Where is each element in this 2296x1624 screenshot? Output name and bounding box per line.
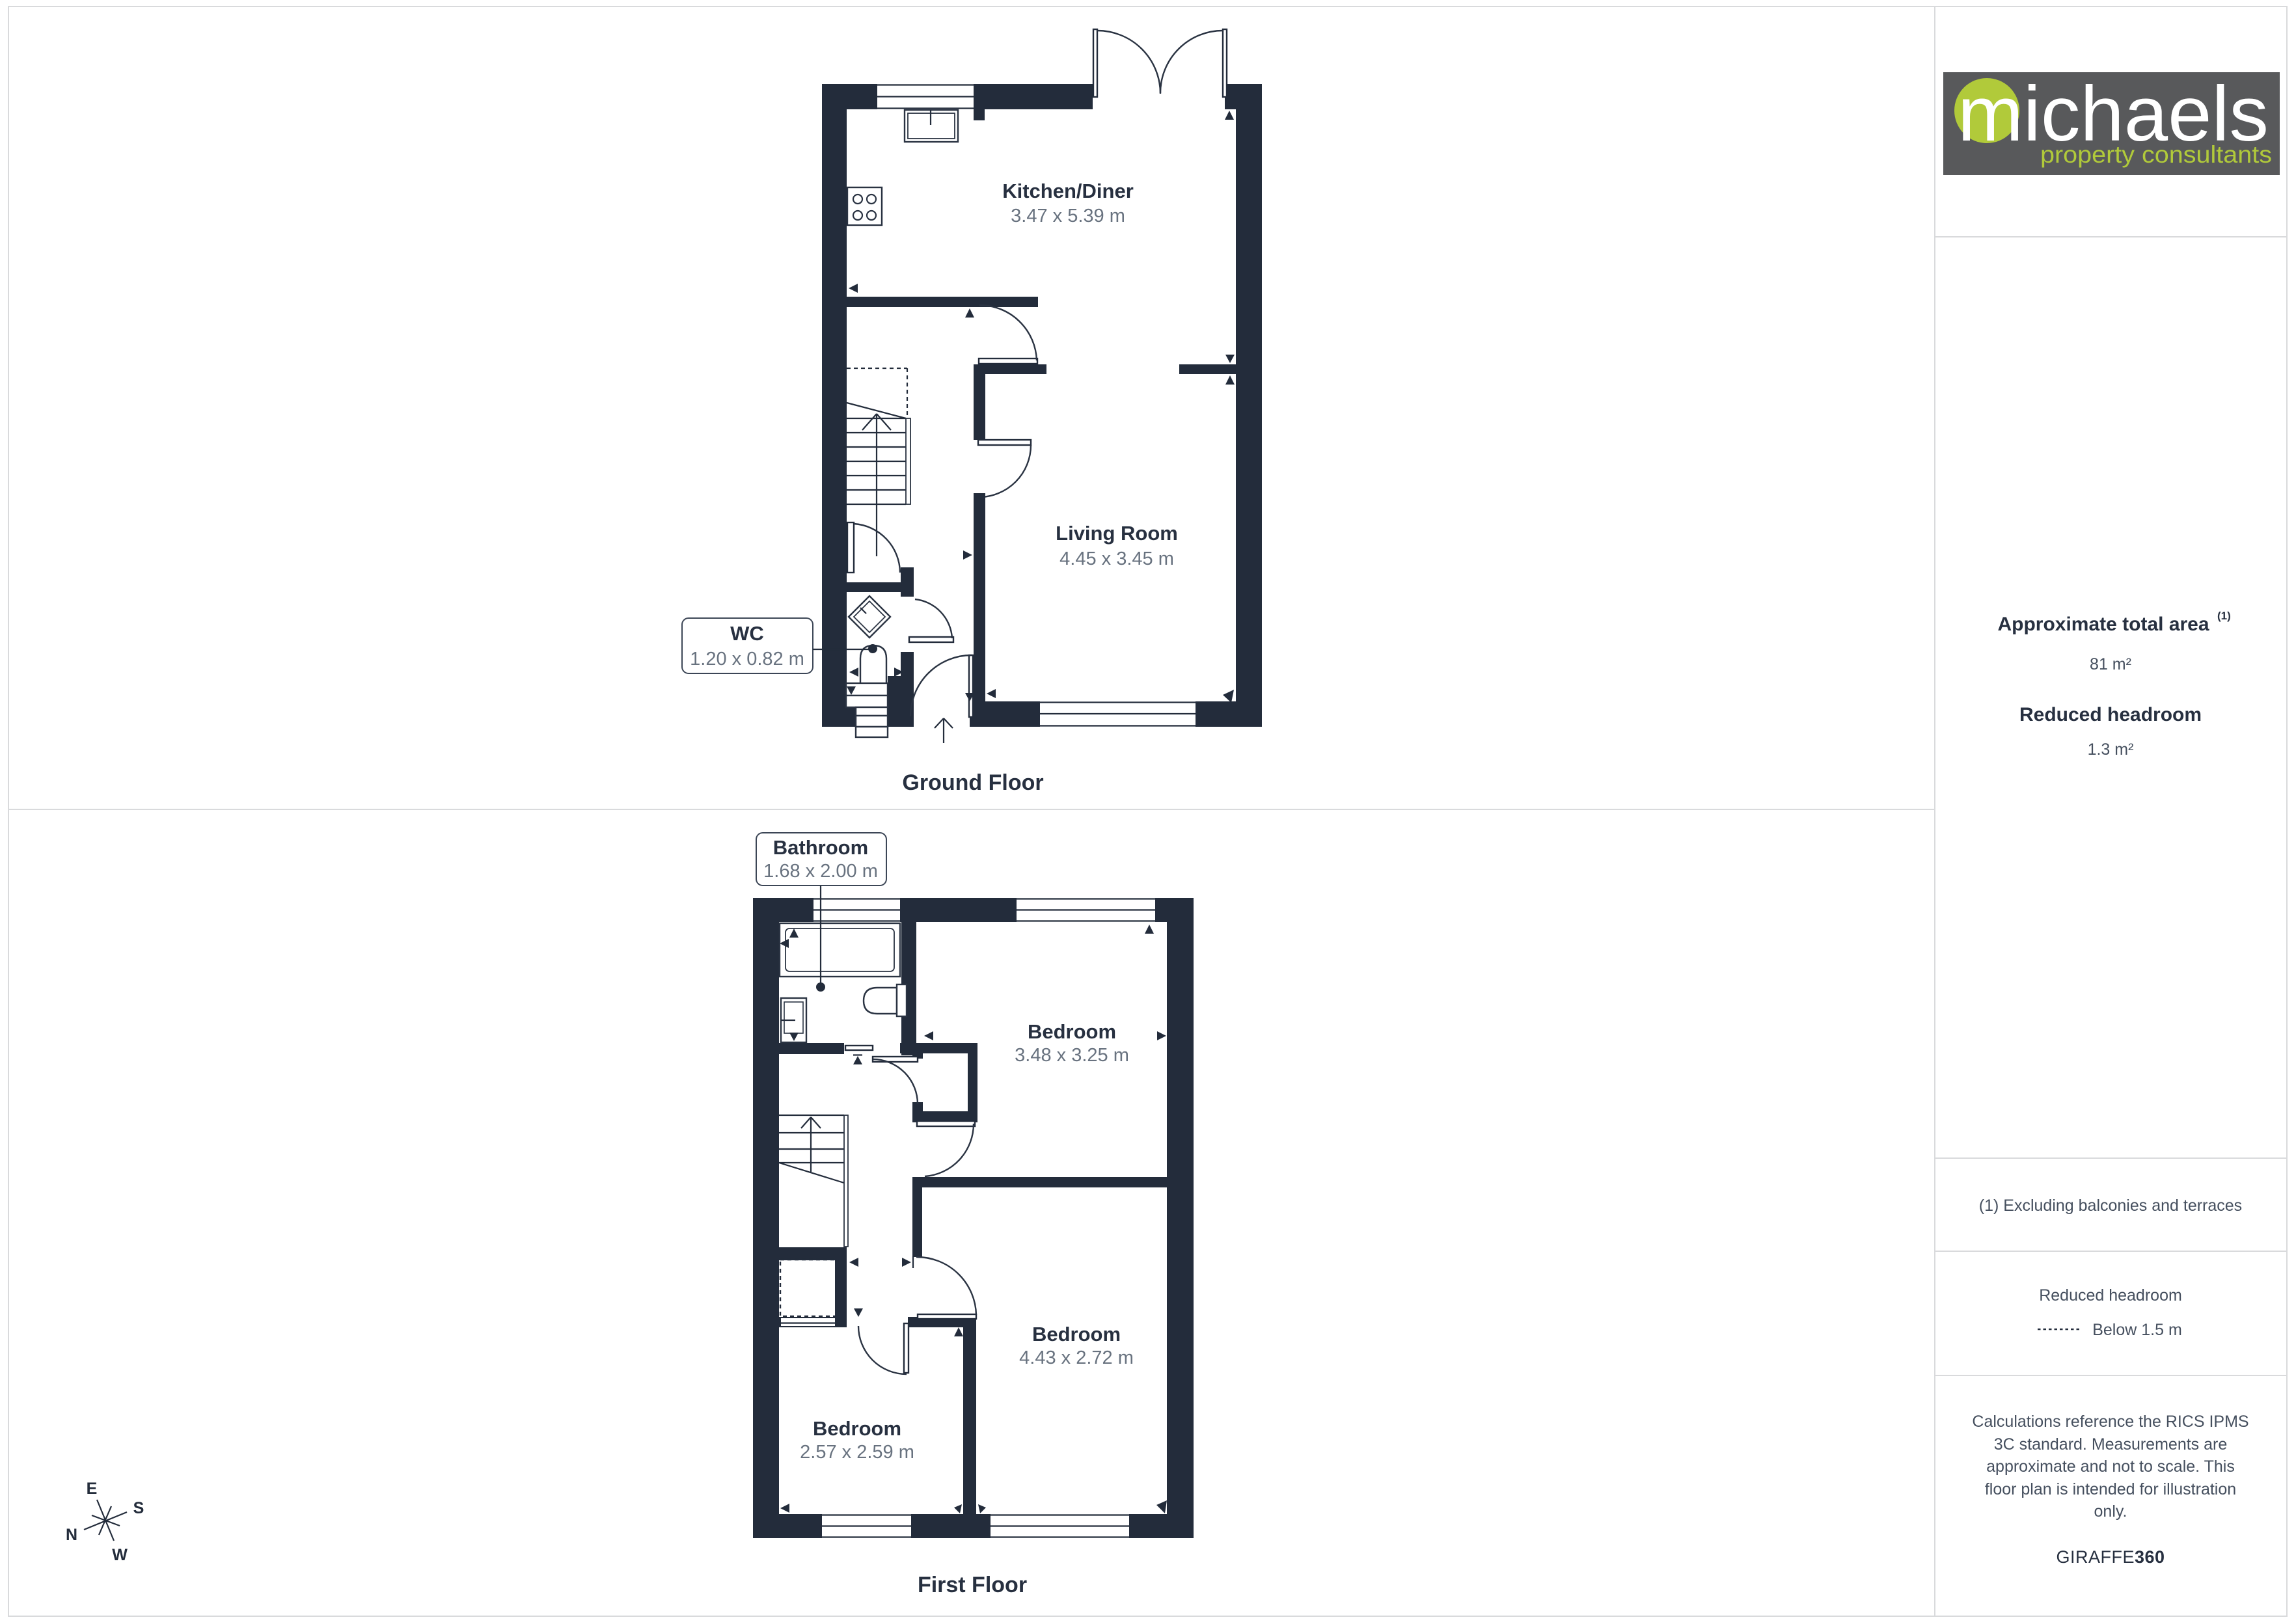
svg-text:Approximate total area: Approximate total area [1997, 614, 2209, 635]
svg-text:property consultants: property consultants [2040, 141, 2272, 168]
svg-text:Below 1.5 m: Below 1.5 m [2092, 1321, 2182, 1339]
svg-text:First Floor: First Floor [918, 1573, 1027, 1597]
svg-text:3.47 x 5.39 m: 3.47 x 5.39 m [1011, 206, 1125, 226]
svg-text:GIRAFFE360: GIRAFFE360 [2056, 1547, 2165, 1567]
svg-text:Bedroom: Bedroom [1032, 1323, 1121, 1346]
svg-text:1.3 m²: 1.3 m² [2088, 740, 2134, 759]
svg-text:(1) Excluding balconies and te: (1) Excluding balconies and terraces [1979, 1197, 2242, 1215]
svg-text:2.57 x 2.59 m: 2.57 x 2.59 m [800, 1442, 914, 1463]
svg-text:WC: WC [730, 622, 764, 645]
svg-text:(1): (1) [2217, 610, 2231, 622]
svg-text:3.48 x 3.25 m: 3.48 x 3.25 m [1015, 1045, 1129, 1066]
svg-text:1.20 x 0.82 m: 1.20 x 0.82 m [690, 649, 804, 670]
svg-text:4.45 x 3.45 m: 4.45 x 3.45 m [1059, 548, 1174, 569]
svg-text:N: N [66, 1526, 77, 1544]
svg-text:1.68 x 2.00 m: 1.68 x 2.00 m [763, 861, 878, 882]
svg-text:Calculations reference the RIC: Calculations reference the RICS IPMS [1972, 1413, 2248, 1431]
svg-text:Bathroom: Bathroom [773, 836, 868, 859]
svg-text:81 m²: 81 m² [2090, 655, 2131, 673]
svg-text:Reduced headroom: Reduced headroom [2019, 704, 2202, 725]
svg-text:3C standard. Measurements are: 3C standard. Measurements are [1994, 1435, 2228, 1454]
svg-text:W: W [112, 1546, 128, 1564]
svg-text:Living Room: Living Room [1056, 522, 1178, 545]
svg-text:approximate and not to scale.: approximate and not to scale. This [1986, 1457, 2235, 1476]
svg-text:Kitchen/Diner: Kitchen/Diner [1002, 180, 1134, 202]
svg-text:Bedroom: Bedroom [1028, 1020, 1116, 1043]
svg-text:Ground Floor: Ground Floor [902, 770, 1043, 795]
svg-text:S: S [133, 1499, 144, 1517]
svg-text:Reduced headroom: Reduced headroom [2039, 1286, 2182, 1305]
svg-text:only.: only. [2094, 1502, 2127, 1521]
svg-text:E: E [87, 1480, 98, 1498]
svg-text:4.43 x 2.72 m: 4.43 x 2.72 m [1019, 1347, 1134, 1368]
svg-text:Bedroom: Bedroom [813, 1417, 901, 1440]
svg-text:floor plan is intended for ill: floor plan is intended for illustration [1985, 1480, 2236, 1498]
